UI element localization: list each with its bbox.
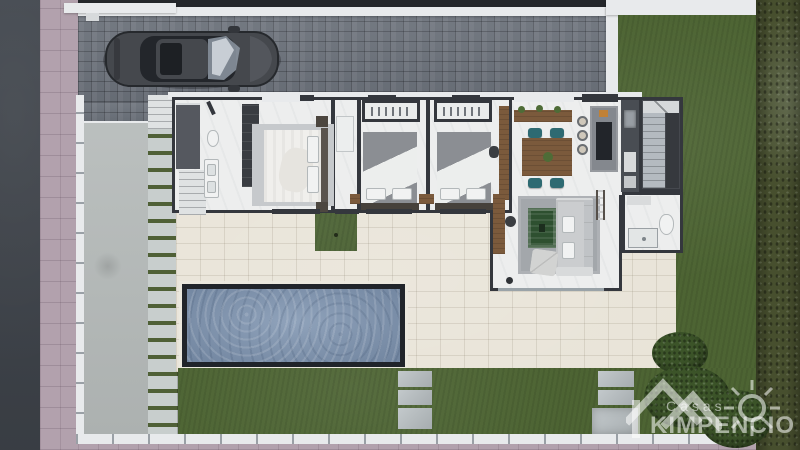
closet-clothes (443, 107, 481, 116)
toilet (659, 214, 674, 235)
living-console (493, 198, 505, 254)
street-road (0, 0, 40, 450)
sink (207, 164, 216, 176)
office-chair (505, 216, 516, 227)
floor-plan-render: Casas KIMPENCIO (0, 0, 800, 450)
pillow (440, 188, 460, 200)
stepping-stone (398, 408, 432, 429)
sidewalk-bottom (78, 444, 800, 450)
living-glass-wall (498, 288, 604, 291)
window-bedroom2 (368, 95, 396, 101)
bar-stool (577, 116, 588, 127)
bath2-vanity (627, 196, 651, 205)
pouf (529, 248, 558, 276)
floor-lamp (506, 277, 513, 284)
gate-motor (86, 13, 99, 21)
dining-chair (550, 178, 564, 188)
shower-drain (642, 237, 646, 241)
utility-block (176, 103, 200, 169)
stairwell (639, 97, 683, 192)
sidewalk-left (40, 0, 78, 450)
cooktop (596, 122, 612, 160)
stepping-stone (398, 371, 432, 387)
coffee-table (528, 208, 556, 248)
stair-treads (643, 113, 665, 188)
dining-chair (528, 178, 542, 188)
shower-tray (628, 228, 658, 248)
grass-patch-drain (334, 233, 338, 237)
sofa-tray (562, 216, 575, 233)
dining-chair (528, 128, 542, 138)
stepping-stone (398, 390, 432, 405)
stair-dark-flight (666, 113, 679, 188)
swimming-pool (182, 284, 405, 367)
plant (554, 106, 561, 113)
bar-stool (577, 144, 588, 155)
window-pane (300, 95, 314, 101)
master-sliding-door (272, 209, 320, 214)
car-top-view (100, 26, 284, 92)
nightstand (424, 194, 434, 204)
sofa-tray (562, 242, 575, 259)
side-entry-steps (179, 170, 206, 215)
sofa-back-cushions (584, 200, 593, 274)
closet-clothes (371, 107, 409, 116)
fence-left (76, 95, 84, 444)
side-yard-concrete (83, 123, 148, 434)
entrance-gate (64, 3, 176, 13)
master-toilet (207, 130, 219, 147)
sofa-armrest (556, 267, 593, 276)
bedroom2-closet (362, 100, 420, 122)
master-pillow (307, 136, 319, 163)
brand-text-main: KIMPENCIO (650, 412, 795, 440)
table-centerpiece (543, 152, 553, 162)
kitchen-window (514, 94, 574, 102)
cutting-board (599, 110, 608, 117)
stair-landing (643, 101, 679, 113)
terrace-grass-patch (315, 213, 357, 251)
pillow (366, 188, 386, 200)
pillow (466, 188, 486, 200)
bedroom3-sliding-door (440, 209, 486, 214)
master-pillow (307, 166, 319, 193)
ladder-decor (596, 190, 605, 220)
bedroom3-closet (434, 100, 492, 122)
dining-chair (550, 128, 564, 138)
kitchen-counter (621, 100, 639, 192)
refrigerator (624, 152, 636, 172)
plant (518, 106, 525, 113)
bedroom3-desk (499, 106, 509, 200)
window-bedroom3 (452, 95, 480, 101)
master-headboard (321, 128, 328, 204)
kitchen-sink (624, 110, 636, 128)
plant (536, 105, 543, 112)
coffee-table-tray (539, 224, 545, 232)
range-hood (582, 94, 618, 102)
pillow (392, 188, 412, 200)
bathroom-2 (622, 192, 683, 253)
driveway-corner (78, 102, 150, 123)
kitchen-island (590, 106, 618, 172)
oven (624, 176, 636, 188)
nightstand (350, 194, 360, 204)
desk-chair (489, 146, 499, 158)
hall-cabinet (336, 116, 354, 152)
top-right-wall (606, 0, 758, 15)
entry-door (335, 209, 359, 214)
master-vanity (204, 159, 219, 198)
bar-stool (577, 130, 588, 141)
sink (207, 181, 216, 193)
nightstand (316, 116, 328, 127)
bedroom2-sliding-door (366, 209, 412, 214)
